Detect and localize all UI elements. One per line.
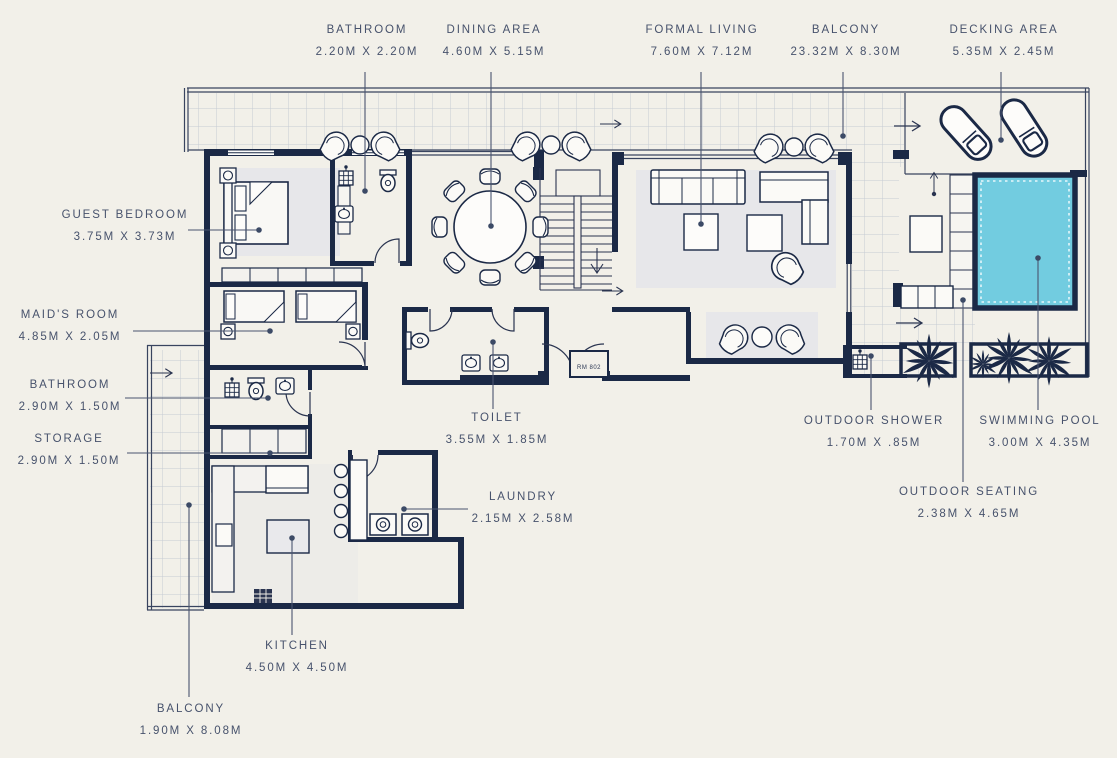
label-formal-living: FORMAL LIVING 7.60M X 7.12M xyxy=(645,24,758,58)
room-name: SWIMMING POOL xyxy=(979,415,1100,427)
room-name: OUTDOOR SEATING xyxy=(899,486,1039,498)
room-name: DECKING AREA xyxy=(949,24,1058,36)
room-name: GUEST BEDROOM xyxy=(62,209,189,221)
storage-shelves xyxy=(222,429,306,453)
room-name: DINING AREA xyxy=(443,24,546,36)
bathroom-left-fixtures xyxy=(225,377,294,399)
label-bathroom-left: BATHROOM 2.90M X 1.50M xyxy=(19,379,122,413)
maids-room-furniture xyxy=(221,291,360,339)
label-dining-area: DINING AREA 4.60M X 5.15M xyxy=(443,24,546,58)
room-dims: 2.15M X 2.58M xyxy=(472,513,575,525)
room-dims: 7.60M X 7.12M xyxy=(645,46,758,58)
room-name: FORMAL LIVING xyxy=(645,24,758,36)
room-dims: 3.55M X 1.85M xyxy=(446,434,549,446)
room-name: BATHROOM xyxy=(19,379,122,391)
room-dims: 4.50M X 4.50M xyxy=(246,662,349,674)
room-name: KITCHEN xyxy=(246,640,349,652)
label-toilet: TOILET 3.55M X 1.85M xyxy=(446,412,549,446)
room-dims: 5.35M X 2.45M xyxy=(949,46,1058,58)
room-name: TOILET xyxy=(446,412,549,424)
room-name: BATHROOM xyxy=(316,24,419,36)
room-dims: 2.20M X 2.20M xyxy=(316,46,419,58)
label-balcony-top: BALCONY 23.32M X 8.30M xyxy=(791,24,902,58)
floor-plan-canvas: RM 802 BATHROOM 2.20M X 2.20M DINING ARE… xyxy=(0,0,1117,758)
label-outdoor-seating: OUTDOOR SEATING 2.38M X 4.65M xyxy=(899,486,1039,520)
room-name: OUTDOOR SHOWER xyxy=(804,415,944,427)
room-dims: 3.75M X 3.73M xyxy=(62,231,189,243)
room-name: LAUNDRY xyxy=(472,491,575,503)
room-dims: 1.70M X .85M xyxy=(804,437,944,449)
label-guest-bedroom: GUEST BEDROOM 3.75M X 3.73M xyxy=(62,209,189,243)
room-name: BALCONY xyxy=(791,24,902,36)
room-name: STORAGE xyxy=(18,433,121,445)
room-dims: 2.90M X 1.50M xyxy=(19,401,122,413)
label-maids-room: MAID'S ROOM 4.85M X 2.05M xyxy=(19,309,122,343)
room-dims: 2.38M X 4.65M xyxy=(899,508,1039,520)
laundry-machines xyxy=(370,514,428,535)
label-storage: STORAGE 2.90M X 1.50M xyxy=(18,433,121,467)
label-swimming-pool: SWIMMING POOL 3.00M X 4.35M xyxy=(979,415,1100,449)
label-decking-area: DECKING AREA 5.35M X 2.45M xyxy=(949,24,1058,58)
label-bathroom-top: BATHROOM 2.20M X 2.20M xyxy=(316,24,419,58)
room-dims: 2.90M X 1.50M xyxy=(18,455,121,467)
label-laundry: LAUNDRY 2.15M X 2.58M xyxy=(472,491,575,525)
label-kitchen: KITCHEN 4.50M X 4.50M xyxy=(246,640,349,674)
staircase xyxy=(540,168,612,290)
swimming-pool xyxy=(950,175,1075,308)
room-name: MAID'S ROOM xyxy=(19,309,122,321)
label-balcony-bottom: BALCONY 1.90M X 8.08M xyxy=(140,703,243,737)
room-dims: 4.85M X 2.05M xyxy=(19,331,122,343)
room-dims: 3.00M X 4.35M xyxy=(979,437,1100,449)
room-dims: 23.32M X 8.30M xyxy=(791,46,902,58)
room-dims: 1.90M X 8.08M xyxy=(140,725,243,737)
room-dims: 4.60M X 5.15M xyxy=(443,46,546,58)
entry-door-plate: RM 802 xyxy=(570,351,608,377)
room-name: BALCONY xyxy=(140,703,243,715)
floor-plan: RM 802 xyxy=(0,0,1117,758)
room-number: RM 802 xyxy=(577,365,601,371)
label-outdoor-shower: OUTDOOR SHOWER 1.70M X .85M xyxy=(804,415,944,449)
planters xyxy=(901,332,1087,388)
